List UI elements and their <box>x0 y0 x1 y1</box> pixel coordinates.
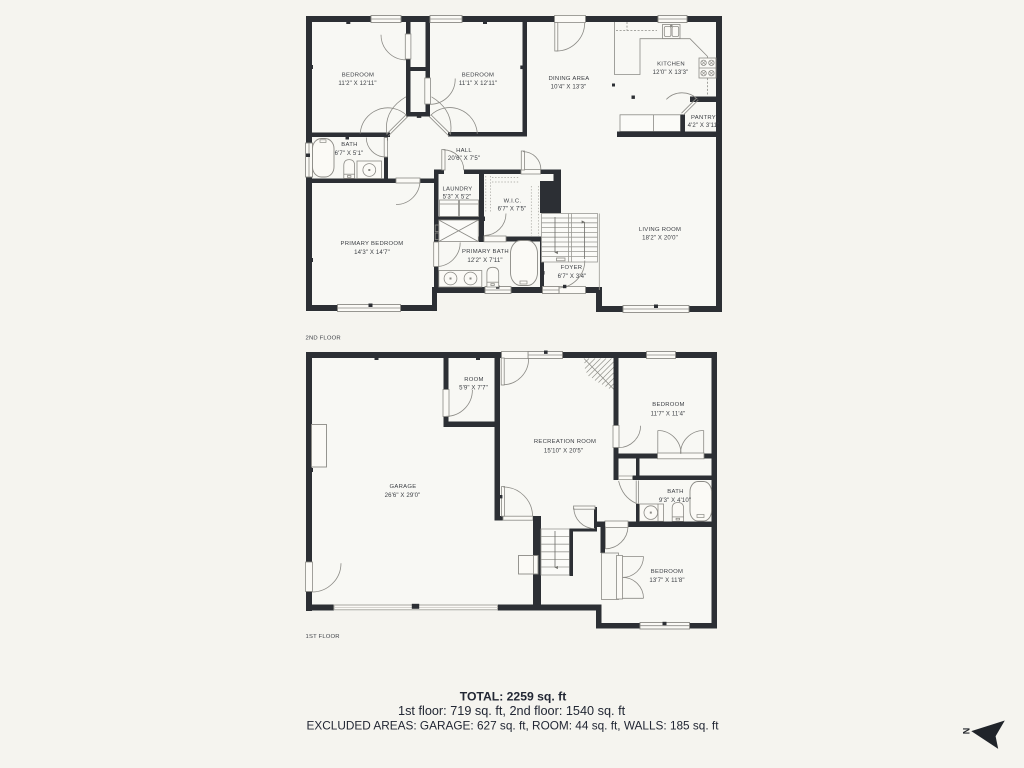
svg-text:11'2" X 12'11": 11'2" X 12'11" <box>338 81 376 87</box>
svg-text:20'6" X 7'5": 20'6" X 7'5" <box>448 156 480 162</box>
svg-text:2ND FLOOR: 2ND FLOOR <box>306 336 341 342</box>
svg-text:10'4" X 13'3": 10'4" X 13'3" <box>551 85 587 91</box>
svg-text:PRIMARY BEDROOM: PRIMARY BEDROOM <box>341 241 404 247</box>
svg-text:HALL: HALL <box>456 148 472 154</box>
svg-text:EXCLUDED AREAS: GARAGE: 627 sq: EXCLUDED AREAS: GARAGE: 627 sq. ft, ROOM… <box>307 718 720 732</box>
svg-text:26'6" X 29'0": 26'6" X 29'0" <box>385 493 421 499</box>
svg-text:18'2" X 20'0": 18'2" X 20'0" <box>642 236 678 242</box>
svg-text:ROOM: ROOM <box>464 377 483 383</box>
svg-text:4'2" X 3'11": 4'2" X 3'11" <box>688 123 720 129</box>
svg-text:6'7" X 5'1": 6'7" X 5'1" <box>335 151 364 157</box>
svg-text:12'2" X 7'11": 12'2" X 7'11" <box>467 258 502 264</box>
svg-text:KITCHEN: KITCHEN <box>657 62 685 68</box>
svg-text:TOTAL: 2259 sq. ft: TOTAL: 2259 sq. ft <box>460 690 567 704</box>
svg-text:13'7" X 11'8": 13'7" X 11'8" <box>649 578 684 584</box>
svg-text:GARAGE: GARAGE <box>390 484 417 490</box>
svg-text:BATH: BATH <box>341 142 357 148</box>
svg-text:14'3" X 14'7": 14'3" X 14'7" <box>354 250 390 256</box>
svg-text:BATH: BATH <box>667 489 683 495</box>
svg-text:11'1" X 12'11": 11'1" X 12'11" <box>459 81 497 87</box>
svg-text:1st floor: 719 sq. ft, 2nd flo: 1st floor: 719 sq. ft, 2nd floor: 1540 s… <box>398 704 626 718</box>
svg-text:15'10" X 20'5": 15'10" X 20'5" <box>544 449 583 455</box>
svg-text:RECREATION ROOM: RECREATION ROOM <box>534 439 596 445</box>
svg-text:11'7" X 11'4": 11'7" X 11'4" <box>651 412 686 418</box>
svg-text:1ST FLOOR: 1ST FLOOR <box>306 634 340 640</box>
svg-text:5'9" X 7'7": 5'9" X 7'7" <box>459 386 488 392</box>
svg-text:6'7" X 7'5": 6'7" X 7'5" <box>498 207 527 213</box>
svg-text:BEDROOM: BEDROOM <box>342 73 374 79</box>
svg-text:5'3" X 5'2": 5'3" X 5'2" <box>443 195 472 201</box>
svg-text:BEDROOM: BEDROOM <box>462 73 494 79</box>
svg-text:FOYER: FOYER <box>561 265 583 271</box>
svg-text:9'3" X 4'10": 9'3" X 4'10" <box>659 498 691 504</box>
svg-text:W.I.C.: W.I.C. <box>504 199 522 205</box>
svg-text:LAUNDRY: LAUNDRY <box>442 187 472 193</box>
svg-text:BEDROOM: BEDROOM <box>652 402 684 408</box>
svg-text:12'0" X 13'3": 12'0" X 13'3" <box>653 70 689 76</box>
svg-text:6'7" X 3'4": 6'7" X 3'4" <box>558 274 587 280</box>
svg-text:N: N <box>961 728 971 735</box>
svg-text:PRIMARY BATH: PRIMARY BATH <box>462 249 509 255</box>
svg-text:BEDROOM: BEDROOM <box>651 569 683 575</box>
svg-text:DINING AREA: DINING AREA <box>548 76 589 82</box>
svg-text:PANTRY: PANTRY <box>691 115 716 121</box>
svg-text:LIVING ROOM: LIVING ROOM <box>639 227 681 233</box>
